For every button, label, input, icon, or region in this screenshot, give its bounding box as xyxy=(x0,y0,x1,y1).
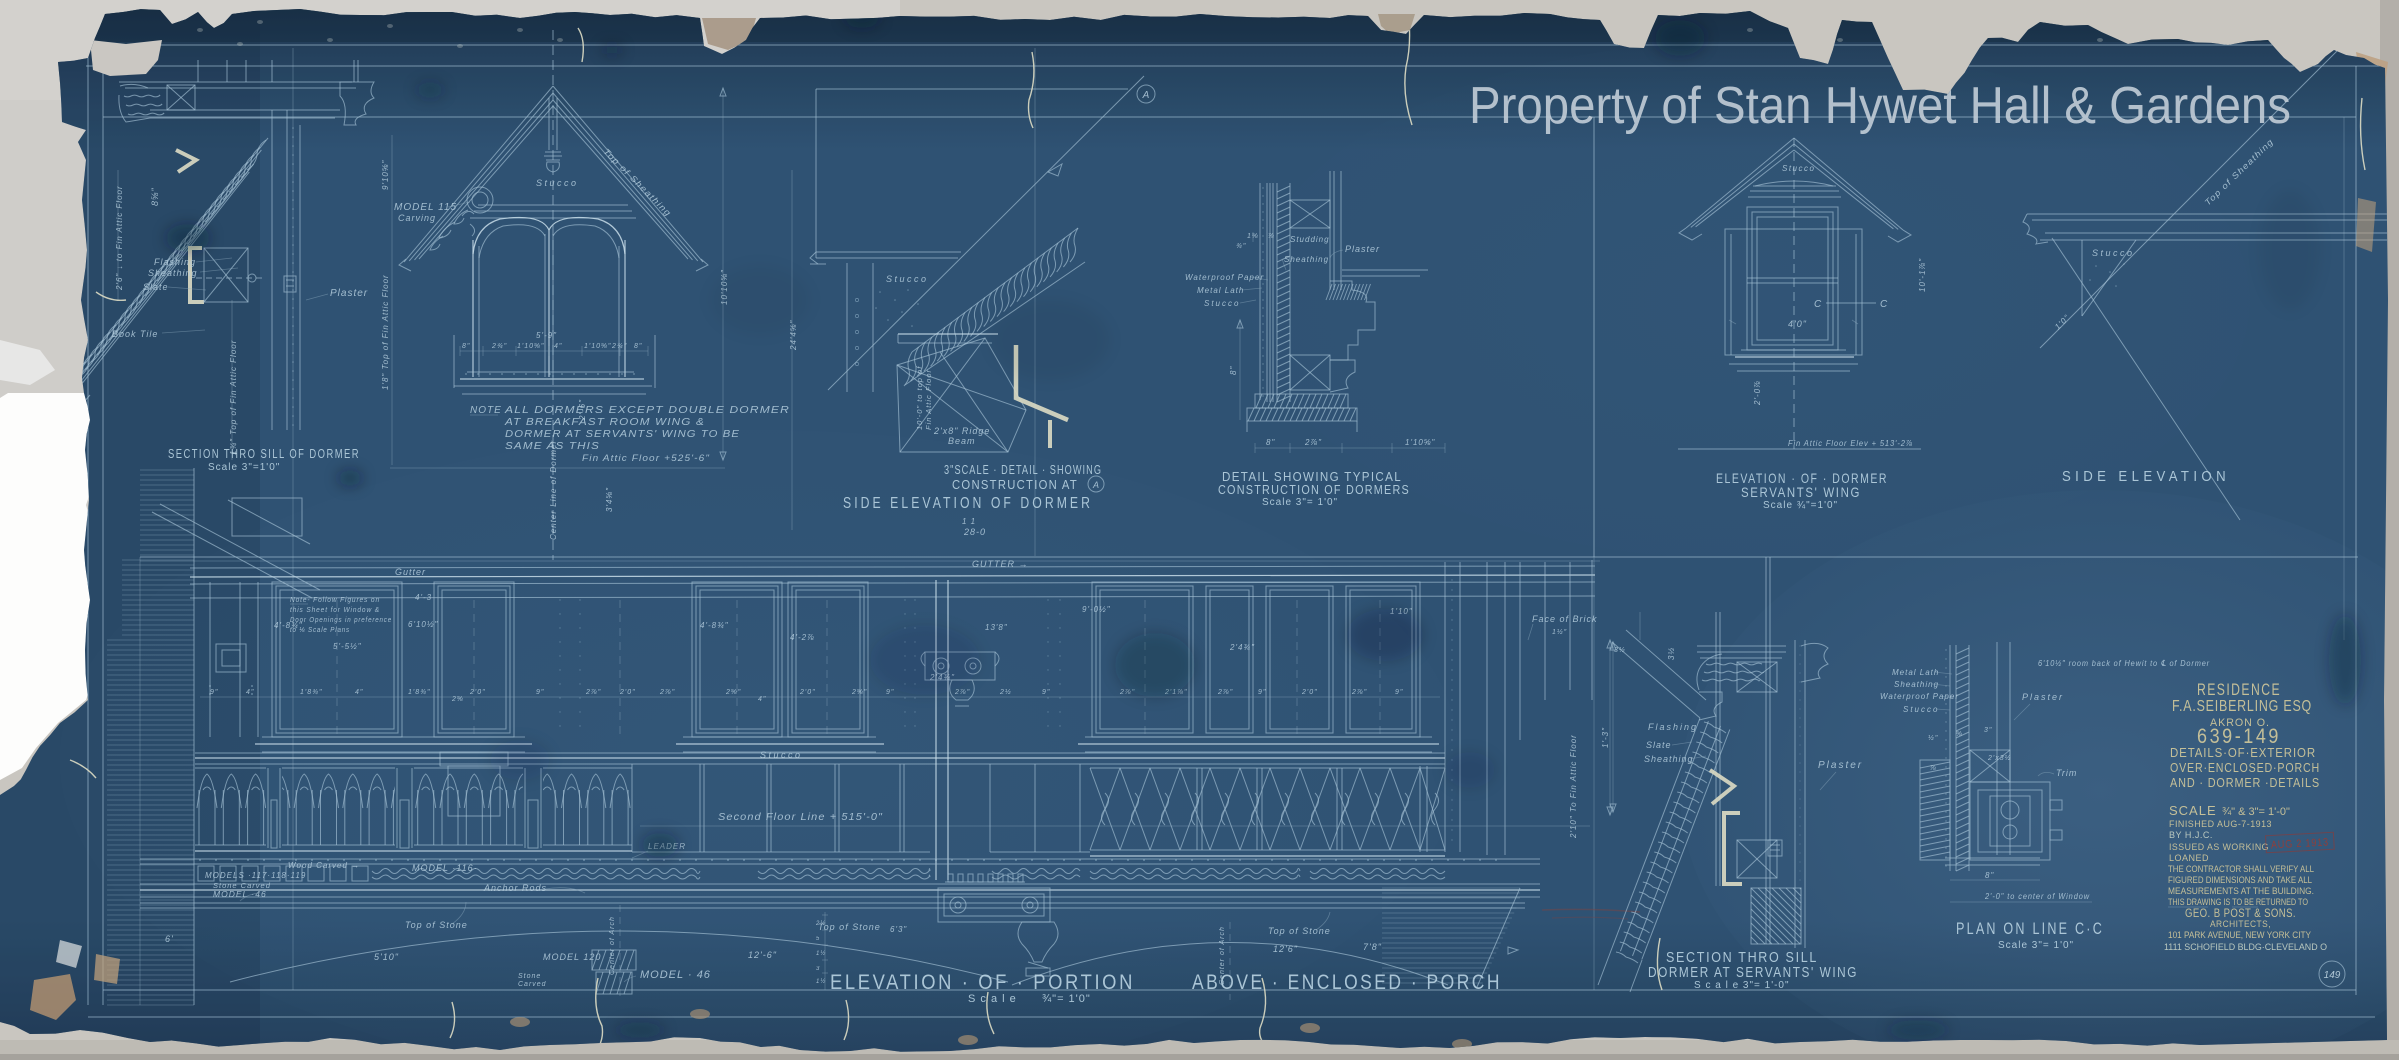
svg-text:1111 SCHOFIELD BLDG·CLEVELAND: 1111 SCHOFIELD BLDG·CLEVELAND O xyxy=(2164,942,2327,953)
svg-text:LOANED: LOANED xyxy=(2169,853,2209,863)
svg-text:C: C xyxy=(1814,299,1822,310)
svg-text:Wood Carved →: Wood Carved → xyxy=(288,861,360,870)
svg-text:2⅞": 2⅞" xyxy=(1351,689,1367,696)
svg-text:6'10½": 6'10½" xyxy=(408,620,439,629)
svg-text:10'-1⅞": 10'-1⅞" xyxy=(1918,258,1927,292)
svg-text:MEASUREMENTS AT THE BUILDING.: MEASUREMENTS AT THE BUILDING. xyxy=(2168,886,2314,896)
svg-text:Book Tile: Book Tile xyxy=(112,329,158,339)
svg-text:MODEL · 46: MODEL · 46 xyxy=(640,969,711,981)
svg-text:SERVANTS' WING: SERVANTS' WING xyxy=(1741,484,1861,500)
svg-text:Door Openings in preference: Door Openings in preference xyxy=(290,615,392,624)
svg-text:ELEVATION · OF · PORTION: ELEVATION · OF · PORTION xyxy=(830,971,1135,994)
svg-text:FIGURED DIMENSIONS AND TAKE AL: FIGURED DIMENSIONS AND TAKE ALL xyxy=(2168,875,2312,885)
svg-text:Beam: Beam xyxy=(948,436,976,446)
svg-text:28-0: 28-0 xyxy=(963,527,986,537)
svg-text:Plaster: Plaster xyxy=(2022,692,2064,702)
svg-text:9": 9" xyxy=(536,689,544,696)
svg-text:Sheathing: Sheathing xyxy=(1644,754,1694,764)
svg-text:3": 3" xyxy=(1984,727,1992,734)
svg-text:AND · DORMER ·DETAILS: AND · DORMER ·DETAILS xyxy=(2170,775,2320,790)
svg-text:4": 4" xyxy=(554,343,562,350)
svg-text:9'10⅝": 9'10⅝" xyxy=(381,159,390,190)
svg-text:Metal Lath: Metal Lath xyxy=(1892,668,1939,677)
svg-text:CONSTRUCTION OF DORMERS: CONSTRUCTION OF DORMERS xyxy=(1218,482,1410,497)
svg-text:Stucco: Stucco xyxy=(536,178,579,188)
svg-text:Plaster: Plaster xyxy=(1345,244,1380,254)
svg-text:1'8¾": 1'8¾" xyxy=(300,689,322,696)
svg-text:10'-0" to top of: 10'-0" to top of xyxy=(915,366,924,430)
svg-text:1'10⅝": 1'10⅝" xyxy=(1405,438,1436,447)
svg-text:2⅝": 2⅝" xyxy=(851,689,867,696)
svg-text:8": 8" xyxy=(462,343,470,350)
svg-text:Waterproof Paper: Waterproof Paper xyxy=(1880,692,1959,701)
svg-text:6'3": 6'3" xyxy=(890,925,907,934)
svg-text:4'-8¾": 4'-8¾" xyxy=(700,621,729,630)
svg-text:FINISHED AUG-7-1913: FINISHED AUG-7-1913 xyxy=(2169,819,2272,829)
svg-text:SIDE ELEVATION OF DORMER: SIDE ELEVATION OF DORMER xyxy=(843,495,1093,512)
svg-text:3½: 3½ xyxy=(1667,647,1676,660)
svg-text:4": 4" xyxy=(355,689,363,696)
svg-text:1'8" Top of Fin Attic Floor: 1'8" Top of Fin Attic Floor xyxy=(381,274,390,390)
svg-text:NOTE: NOTE xyxy=(470,405,502,416)
svg-text:MODEL 120: MODEL 120 xyxy=(543,952,601,962)
svg-text:8⅝": 8⅝" xyxy=(150,187,160,206)
svg-text:THE CONTRACTOR SHALL VERIFY AL: THE CONTRACTOR SHALL VERIFY ALL xyxy=(2168,864,2314,874)
svg-text:Note- Follow Figures on: Note- Follow Figures on xyxy=(290,595,380,604)
svg-text:2'4¾": 2'4¾" xyxy=(1229,643,1255,652)
svg-text:GUTTER →: GUTTER → xyxy=(972,559,1029,569)
svg-text:AT BREAKFAST ROOM WING &: AT BREAKFAST ROOM WING & xyxy=(504,417,705,428)
svg-text:ALL DORMERS EXCEPT DOUBLE DORM: ALL DORMERS EXCEPT DOUBLE DORMER xyxy=(504,405,790,416)
svg-text:2⅝: 2⅝ xyxy=(451,696,464,703)
svg-text:2'6" ↓ to Fin Attic Floor: 2'6" ↓ to Fin Attic Floor xyxy=(115,185,124,291)
svg-text:Trim: Trim xyxy=(2056,768,2077,778)
svg-text:Carved: Carved xyxy=(518,981,547,988)
svg-text:½": ½" xyxy=(1928,734,1938,742)
svg-text:SAME AS THIS: SAME AS THIS xyxy=(505,441,600,452)
svg-text:this Sheet for Window &: this Sheet for Window & xyxy=(290,605,380,614)
svg-text:101 PARK AVENUE, NEW YORK CITY: 101 PARK AVENUE, NEW YORK CITY xyxy=(2168,930,2311,940)
svg-text:Plaster: Plaster xyxy=(1818,760,1863,771)
svg-text:¾" & 3"= 1'-0": ¾" & 3"= 1'-0" xyxy=(2222,806,2290,818)
svg-text:6': 6' xyxy=(165,934,174,944)
svg-text:⅞: ⅞ xyxy=(1268,233,1275,240)
svg-text:F.A.SEIBERLING ESQ: F.A.SEIBERLING ESQ xyxy=(2172,698,2312,715)
svg-text:RESIDENCE: RESIDENCE xyxy=(2197,680,2281,699)
svg-text:Sheathing: Sheathing xyxy=(1894,680,1939,689)
svg-text:Center Line of Dormer: Center Line of Dormer xyxy=(549,440,558,540)
svg-text:DORMER AT SERVANTS' WING: DORMER AT SERVANTS' WING xyxy=(1648,964,1858,981)
svg-text:7'8": 7'8" xyxy=(1363,942,1382,952)
svg-text:ARCHITECTS,: ARCHITECTS, xyxy=(2210,919,2271,929)
svg-text:5: 5 xyxy=(816,936,820,942)
svg-text:Stucco: Stucco xyxy=(1903,705,1939,714)
svg-text:ABOVE · ENCLOSED · PORCH: ABOVE · ENCLOSED · PORCH xyxy=(1192,971,1502,994)
svg-text:Property of Stan Hywet Hall &: Property of Stan Hywet Hall & Gardens xyxy=(1469,77,2291,135)
svg-text:DORMER AT SERVANTS' WING TO BE: DORMER AT SERVANTS' WING TO BE xyxy=(505,429,740,440)
svg-text:A: A xyxy=(1092,480,1099,490)
svg-text:SIDE ELEVATION: SIDE ELEVATION xyxy=(2062,468,2230,485)
svg-text:12'6": 12'6" xyxy=(1273,944,1298,954)
svg-text:Top of Stone: Top of Stone xyxy=(405,920,468,930)
svg-text:Flashing: Flashing xyxy=(154,257,196,267)
svg-text:9'-0½": 9'-0½" xyxy=(1082,605,1111,614)
svg-text:2⅝": 2⅝" xyxy=(725,689,741,696)
svg-text:Slate: Slate xyxy=(1646,740,1672,750)
svg-text:Sheathing: Sheathing xyxy=(1284,255,1329,264)
svg-text:Face of Brick: Face of Brick xyxy=(1532,614,1598,624)
svg-text:8": 8" xyxy=(1985,871,1994,880)
svg-text:OVER·ENCLOSED·PORCH: OVER·ENCLOSED·PORCH xyxy=(2170,760,2320,775)
svg-text:Studding: Studding xyxy=(1290,235,1330,244)
svg-text:Center of Arch: Center of Arch xyxy=(609,916,616,975)
svg-text:PLAN ON LINE C·C: PLAN ON LINE C·C xyxy=(1956,919,2104,938)
svg-text:149: 149 xyxy=(2324,970,2341,981)
svg-text:1'10⅝": 1'10⅝" xyxy=(584,343,611,350)
svg-text:8": 8" xyxy=(1266,438,1275,447)
svg-text:ISSUED AS WORKING: ISSUED AS WORKING xyxy=(2169,842,2269,852)
svg-text:Second Floor Line + 515'-0": Second Floor Line + 515'-0" xyxy=(718,812,883,823)
svg-text:2⅞": 2⅞" xyxy=(585,689,601,696)
svg-text:3"SCALE · DETAIL · SHOWING: 3"SCALE · DETAIL · SHOWING xyxy=(944,462,1102,477)
svg-text:4'-3: 4'-3 xyxy=(415,593,432,602)
svg-text:Fin Attic Floor Elev + 513'-2: Fin Attic Floor Elev + 513'-2⅞ xyxy=(1788,438,1913,448)
svg-text:2⅞": 2⅞" xyxy=(1304,438,1322,447)
svg-text:DETAILS·OF·EXTERIOR: DETAILS·OF·EXTERIOR xyxy=(2170,745,2316,760)
svg-text:13'8": 13'8" xyxy=(985,623,1008,632)
svg-text:1'-3": 1'-3" xyxy=(1601,727,1610,748)
svg-text:2'0": 2'0" xyxy=(469,689,486,696)
svg-text:¾"= 1'0": ¾"= 1'0" xyxy=(1042,993,1091,1005)
svg-text:Top of Stone: Top of Stone xyxy=(1268,926,1331,936)
svg-text:9": 9" xyxy=(1395,689,1403,696)
svg-text:Top of Stone: Top of Stone xyxy=(818,922,881,932)
svg-text:Stucco: Stucco xyxy=(2092,248,2135,258)
svg-text:9": 9" xyxy=(1042,689,1050,696)
svg-text:S c a l e: S c a l e xyxy=(968,993,1017,1005)
svg-text:Slate: Slate xyxy=(143,282,169,292)
svg-text:9": 9" xyxy=(210,689,218,696)
svg-text:Stucco: Stucco xyxy=(1782,164,1815,173)
svg-text:4": 4" xyxy=(758,696,766,703)
svg-text:4": 4" xyxy=(246,689,254,696)
svg-text:A: A xyxy=(1142,90,1150,101)
svg-text:Flashing: Flashing xyxy=(1648,722,1698,732)
svg-text:Carving: Carving xyxy=(398,213,436,223)
svg-text:Anchor Rods: Anchor Rods xyxy=(483,883,547,893)
svg-text:¾": ¾" xyxy=(1236,243,1246,250)
svg-text:⅞: ⅞ xyxy=(1930,765,1937,772)
svg-text:Stone: Stone xyxy=(518,973,541,980)
svg-text:2'0": 2'0" xyxy=(1301,689,1318,696)
svg-text:3'4⅝": 3'4⅝" xyxy=(605,487,614,512)
svg-text:Scale 3"= 1'0": Scale 3"= 1'0" xyxy=(1262,497,1338,508)
svg-text:2⅞": 2⅞" xyxy=(659,689,675,696)
svg-text:S c a l e 3"= 1'-0": S c a l e 3"= 1'-0" xyxy=(1694,980,1790,991)
svg-text:4'-8¾": 4'-8¾" xyxy=(274,621,303,630)
svg-text:2'x3½: 2'x3½ xyxy=(1987,754,2011,762)
svg-text:12'-6": 12'-6" xyxy=(748,950,777,960)
svg-text:BY H.J.C.: BY H.J.C. xyxy=(2169,830,2213,840)
svg-text:9": 9" xyxy=(1258,689,1266,696)
svg-text:⅝: ⅝ xyxy=(1956,731,1963,738)
svg-text:Fin Attic Floor: Fin Attic Floor xyxy=(924,369,933,430)
svg-text:2'x8" Ridge: 2'x8" Ridge xyxy=(933,426,990,436)
svg-text:1'10⅝": 1'10⅝" xyxy=(517,343,544,350)
svg-text:8": 8" xyxy=(1229,366,1238,375)
svg-text:2'0": 2'0" xyxy=(619,689,636,696)
svg-text:2'10" To Fin Attic Floor: 2'10" To Fin Attic Floor xyxy=(1569,734,1578,839)
svg-text:Gutter: Gutter xyxy=(395,567,426,577)
svg-text:2'0": 2'0" xyxy=(799,689,816,696)
svg-text:2¾": 2¾" xyxy=(491,343,507,350)
svg-text:2'-0⅞: 2'-0⅞ xyxy=(1753,380,1762,406)
svg-text:Scale 3"=1'0": Scale 3"=1'0" xyxy=(208,462,280,473)
svg-text:Stucco: Stucco xyxy=(1204,299,1240,308)
svg-text:6'10½" room back of Hewit to: 6'10½" room back of Hewit to ℄ of Dormer xyxy=(2038,658,2210,668)
svg-text:5'-9": 5'-9" xyxy=(536,331,557,340)
svg-text:1½″: 1½″ xyxy=(1552,628,1567,636)
svg-text:CONSTRUCTION AT: CONSTRUCTION AT xyxy=(952,477,1078,492)
svg-text:1¾" Top of Fin Attic Floor: 1¾" Top of Fin Attic Floor xyxy=(229,340,238,455)
svg-text:MODELS ·117·118·119: MODELS ·117·118·119 xyxy=(205,871,306,880)
svg-text:Scale 3"= 1'0": Scale 3"= 1'0" xyxy=(1998,940,2074,951)
svg-text:Fin Attic Floor +525'-6": Fin Attic Floor +525'-6" xyxy=(582,453,710,463)
svg-text:4'-2⅞: 4'-2⅞ xyxy=(790,633,815,642)
svg-text:Sheathing: Sheathing xyxy=(148,268,198,278)
svg-text:GEO. B POST & SONS.: GEO. B POST & SONS. xyxy=(2185,906,2296,920)
svg-text:2⅞": 2⅞" xyxy=(954,689,970,696)
svg-text:Scale ¾"=1'0": Scale ¾"=1'0" xyxy=(1763,500,1838,511)
svg-text:9": 9" xyxy=(886,689,894,696)
svg-text:MODEL 115: MODEL 115 xyxy=(394,202,457,213)
svg-text:2⅞": 2⅞" xyxy=(1217,689,1233,696)
svg-text:1'8¾": 1'8¾" xyxy=(408,689,430,696)
svg-text:5'10": 5'10" xyxy=(374,952,399,962)
svg-text:4'0": 4'0" xyxy=(1788,319,1807,329)
svg-text:MODEL ·116·: MODEL ·116· xyxy=(412,863,478,873)
svg-text:SECTION THRO SILL OF DORME: SECTION THRO SILL OF DORMER xyxy=(168,446,360,461)
svg-text:2½: 2½ xyxy=(999,688,1012,696)
svg-text:8": 8" xyxy=(634,343,642,350)
svg-text:Metal Lath: Metal Lath xyxy=(1197,286,1244,295)
svg-text:SCALE: SCALE xyxy=(2169,803,2217,818)
svg-text:1 1: 1 1 xyxy=(962,517,976,526)
svg-text:3: 3 xyxy=(816,966,820,972)
svg-text:Plaster: Plaster xyxy=(330,288,368,299)
svg-text:Stucco: Stucco xyxy=(886,274,929,284)
svg-text:C: C xyxy=(1880,299,1888,310)
svg-text:2¾": 2¾" xyxy=(611,343,627,350)
svg-text:MODEL ·46: MODEL ·46 xyxy=(213,889,267,899)
svg-text:2'-0" to center of Window: 2'-0" to center of Window xyxy=(1984,892,2090,901)
